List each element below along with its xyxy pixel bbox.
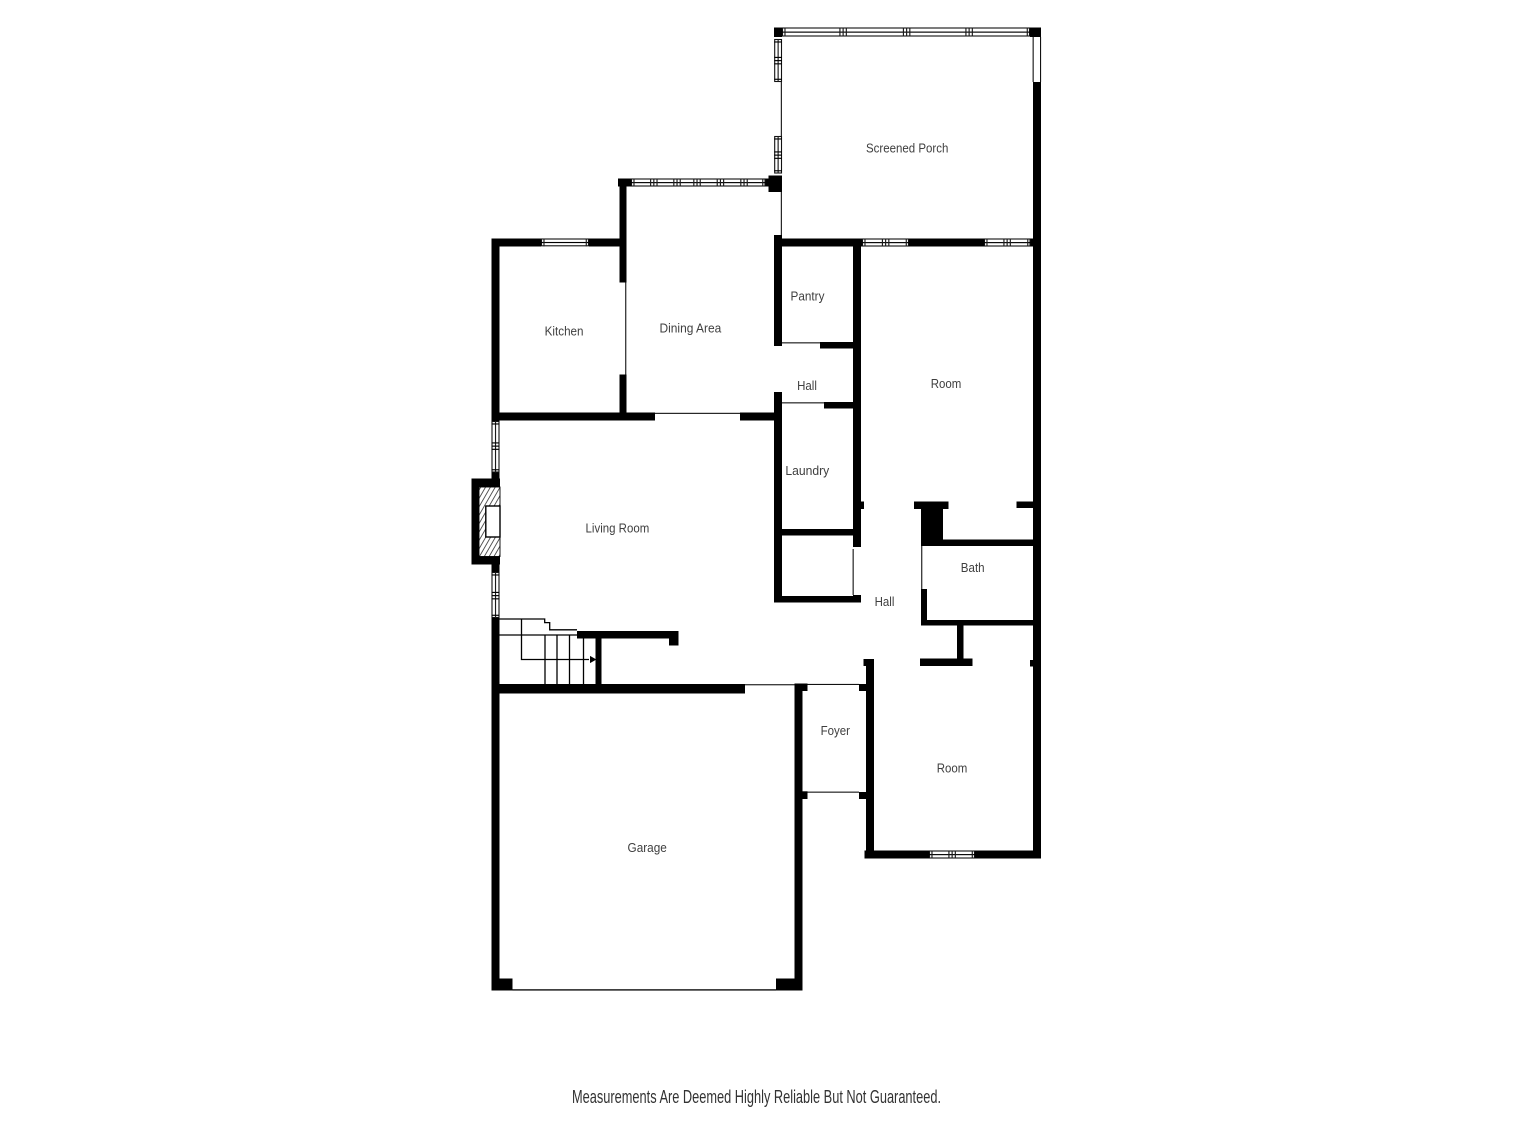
svg-text:Room: Room xyxy=(937,761,968,776)
svg-text:Hall: Hall xyxy=(875,594,895,609)
svg-text:Pantry: Pantry xyxy=(791,289,825,304)
svg-text:Kitchen: Kitchen xyxy=(545,324,584,339)
svg-text:Living Room: Living Room xyxy=(586,521,650,536)
svg-text:Garage: Garage xyxy=(628,840,667,855)
svg-text:Room: Room xyxy=(931,376,962,391)
svg-text:Dining Area: Dining Area xyxy=(660,320,722,335)
svg-text:Hall: Hall xyxy=(797,378,817,393)
svg-text:Laundry: Laundry xyxy=(785,463,829,478)
svg-text:Screened Porch: Screened Porch xyxy=(866,141,948,156)
svg-text:Foyer: Foyer xyxy=(821,723,851,738)
svg-text:Measurements Are Deemed Highly: Measurements Are Deemed Highly Reliable … xyxy=(572,1086,941,1107)
svg-text:Bath: Bath xyxy=(961,560,985,575)
